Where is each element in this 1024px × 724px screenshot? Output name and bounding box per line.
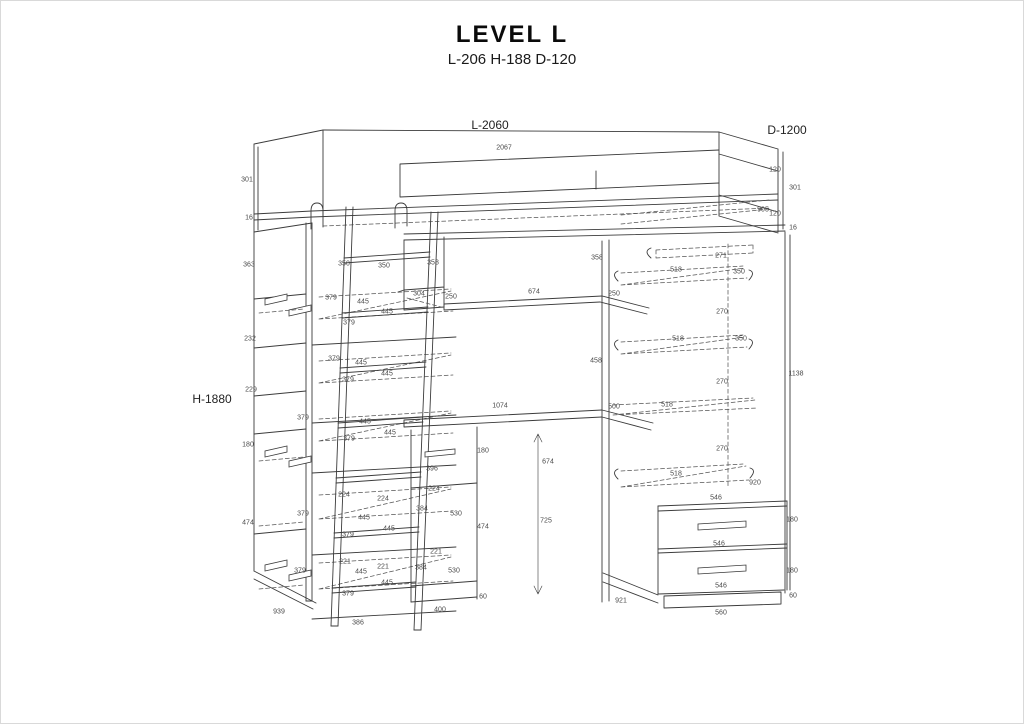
desk-unit xyxy=(398,225,785,602)
bed-outline xyxy=(254,130,783,233)
furniture-line-drawing xyxy=(1,1,1024,724)
wardrobe xyxy=(603,232,790,608)
blueprint-page: LEVEL L L-206 H-188 D-120 xyxy=(0,0,1024,724)
ladder xyxy=(331,207,438,630)
left-cabinet xyxy=(254,223,316,609)
